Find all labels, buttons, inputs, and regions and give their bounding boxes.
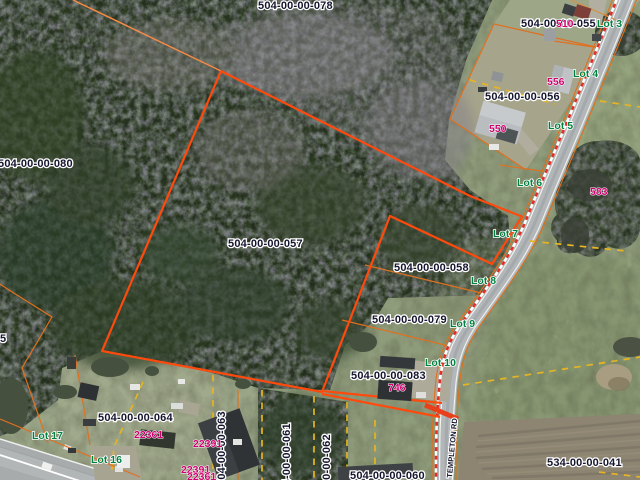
svg-text:5: 5 [0, 333, 6, 345]
svg-text:504-00-00-056: 504-00-00-056 [485, 91, 560, 103]
svg-text:504-00-00-062: 504-00-00-062 [321, 434, 333, 480]
svg-text:22361: 22361 [134, 429, 163, 441]
svg-text:510: 510 [556, 18, 574, 30]
svg-text:Lot 3: Lot 3 [597, 18, 622, 30]
svg-text:22361: 22361 [187, 471, 216, 480]
svg-text:504-00-00-060: 504-00-00-060 [350, 470, 425, 480]
svg-text:Lot 5: Lot 5 [548, 120, 573, 132]
svg-text:504-00-00-078: 504-00-00-078 [258, 0, 333, 12]
svg-text:583: 583 [590, 186, 608, 198]
svg-text:22391: 22391 [193, 438, 222, 450]
svg-text:504-00-00-061: 504-00-00-061 [281, 423, 293, 480]
svg-text:Lot 6: Lot 6 [517, 177, 542, 189]
svg-text:Lot 4: Lot 4 [573, 68, 598, 80]
svg-text:746: 746 [388, 382, 406, 394]
svg-text:504-00-00-057: 504-00-00-057 [228, 238, 303, 250]
svg-text:504-00-00-064: 504-00-00-064 [98, 412, 173, 424]
svg-text:550: 550 [489, 123, 507, 135]
svg-text:504-00-00-058: 504-00-00-058 [394, 262, 469, 274]
svg-text:Lot 10: Lot 10 [425, 357, 456, 369]
svg-text:Lot 8: Lot 8 [471, 275, 496, 287]
svg-text:504-00-00-083: 504-00-00-083 [351, 370, 426, 382]
svg-text:Lot 7: Lot 7 [493, 228, 518, 240]
svg-text:556: 556 [547, 76, 565, 88]
svg-text:534-00-00-041: 534-00-00-041 [547, 457, 622, 469]
svg-text:Lot 16: Lot 16 [91, 454, 122, 466]
svg-text:Lot 17: Lot 17 [32, 430, 63, 442]
svg-text:Lot 9: Lot 9 [450, 318, 475, 330]
svg-text:504-00-00-079: 504-00-00-079 [372, 314, 447, 326]
svg-text:504-00-00-080: 504-00-00-080 [0, 158, 73, 170]
